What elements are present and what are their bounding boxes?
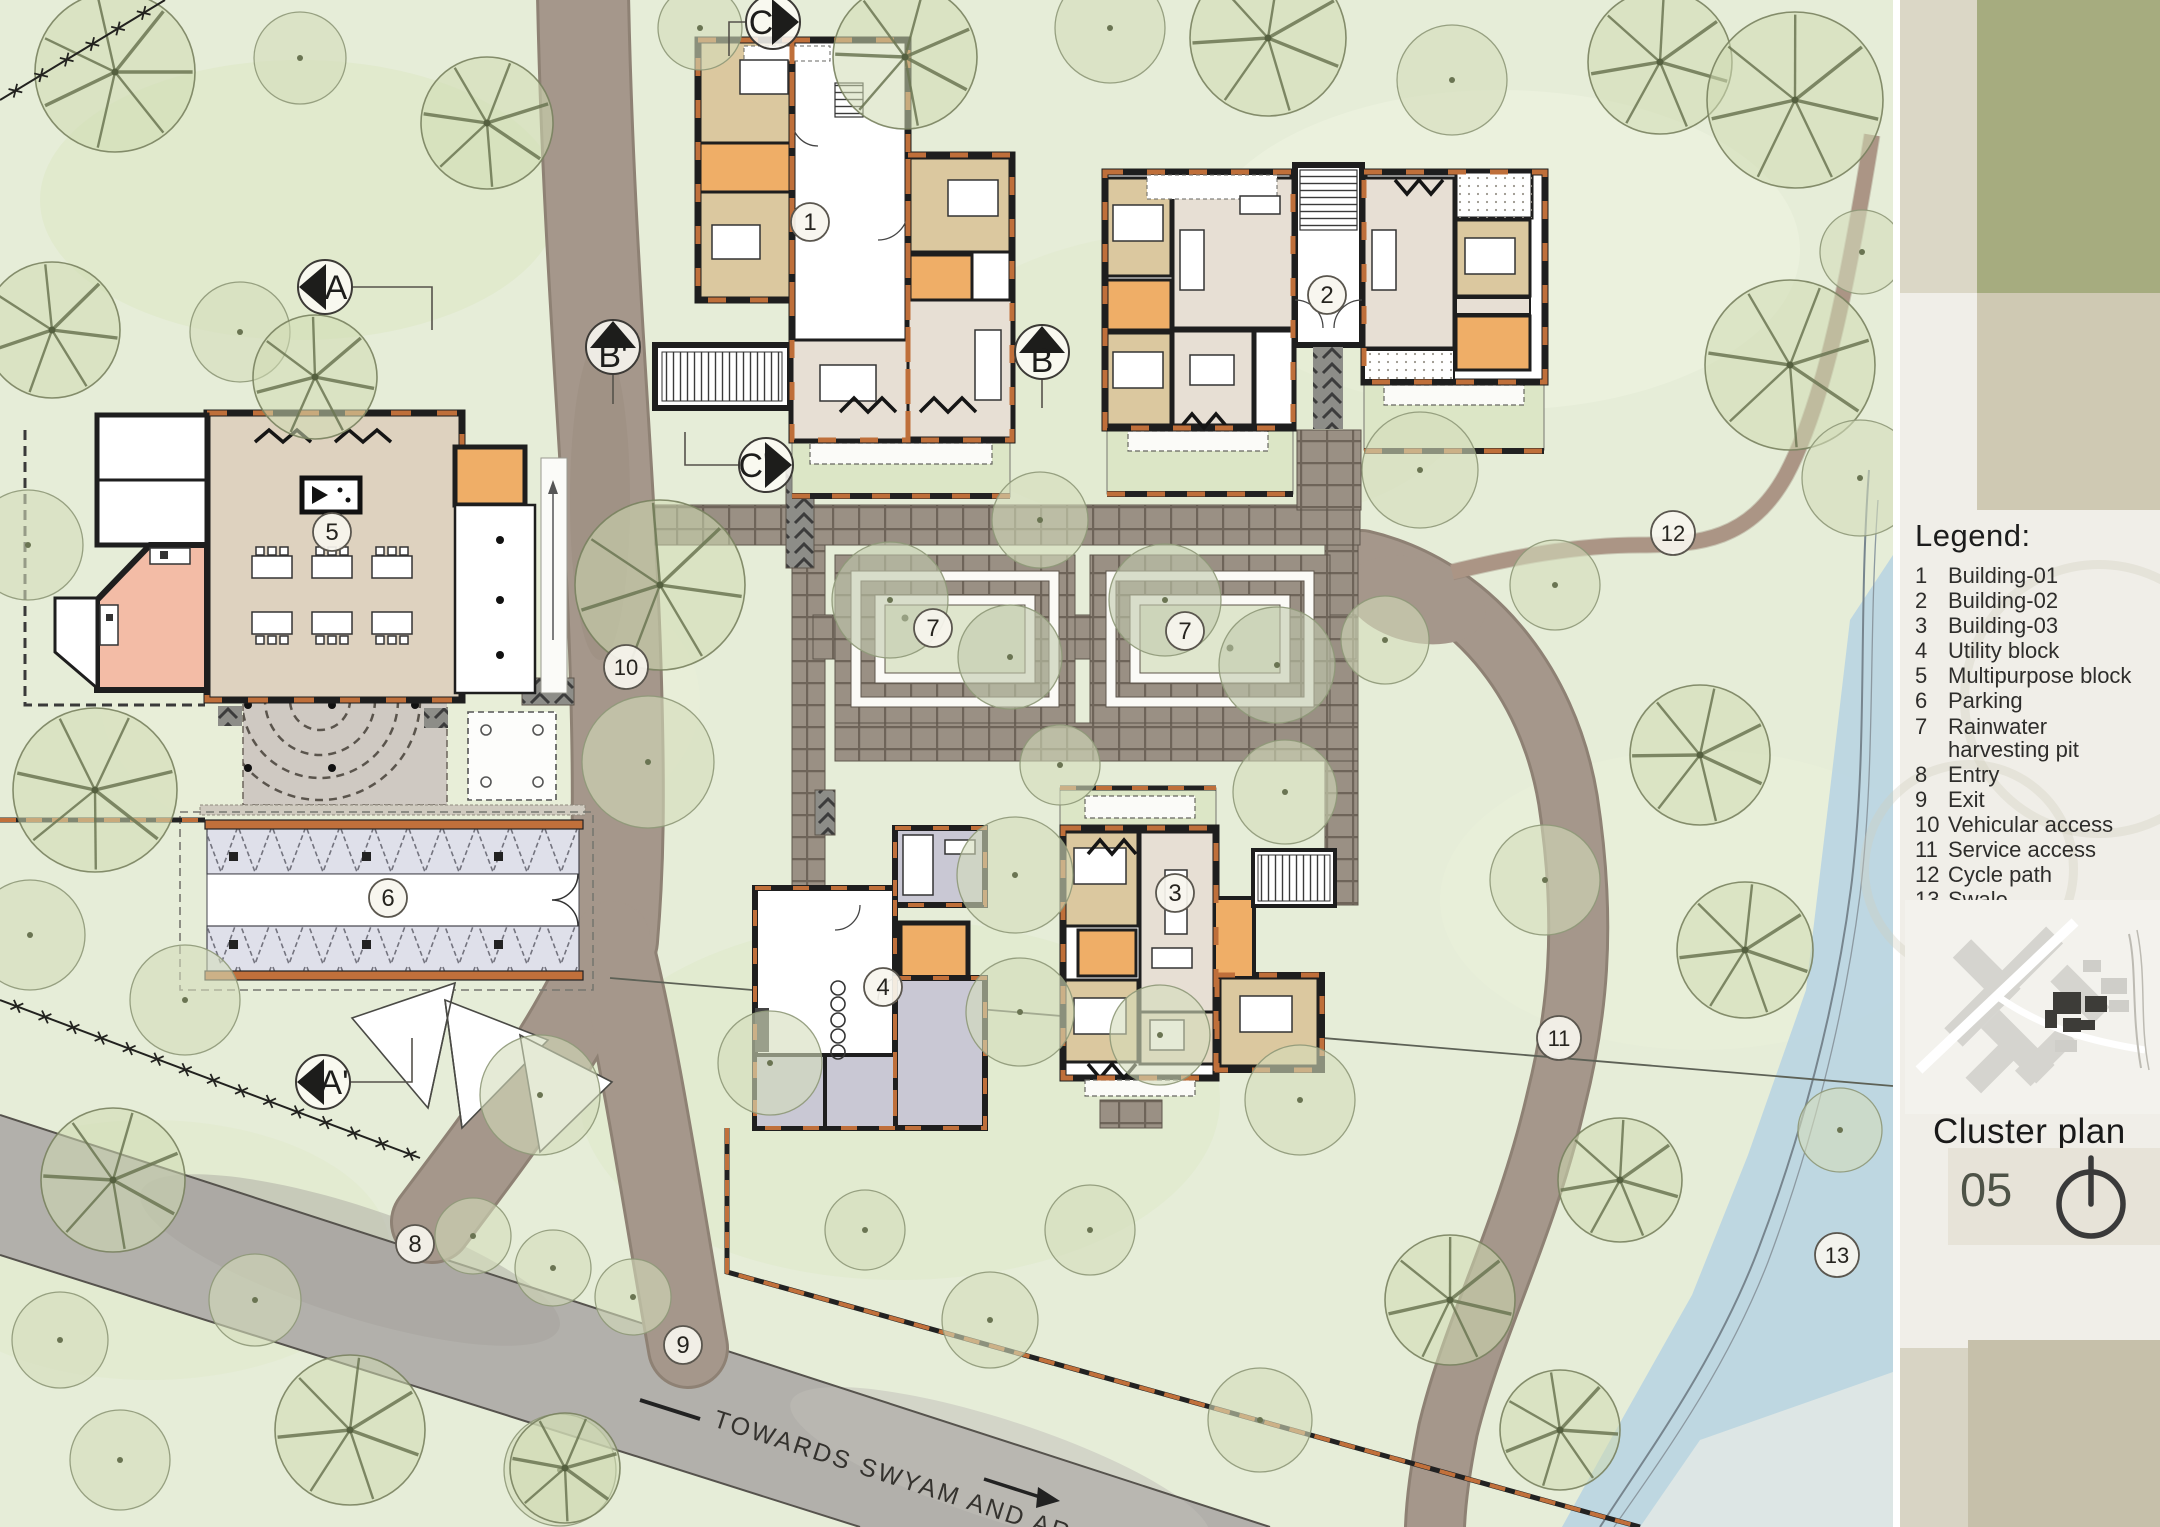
legend-item: 10Vehicular access bbox=[1915, 813, 2147, 836]
legend-item: 12Cycle path bbox=[1915, 863, 2147, 886]
tree bbox=[958, 605, 1062, 709]
legend-item: 1Building-01 bbox=[1915, 564, 2147, 587]
plan-marker-7: 7 bbox=[914, 609, 952, 647]
svg-text:8: 8 bbox=[408, 1231, 421, 1258]
plan-marker-10: 10 bbox=[604, 645, 648, 689]
sidebar-tan-block bbox=[1977, 293, 2160, 510]
svg-text:10: 10 bbox=[614, 655, 638, 680]
svg-text:C: C bbox=[749, 4, 774, 42]
tree bbox=[13, 708, 177, 872]
svg-text:7: 7 bbox=[1178, 618, 1191, 645]
tree bbox=[421, 57, 553, 189]
svg-text:4: 4 bbox=[876, 974, 889, 1001]
svg-text:B': B' bbox=[598, 337, 627, 375]
tree bbox=[35, 0, 195, 152]
legend-item: 8Entry bbox=[1915, 763, 2147, 786]
svg-text:2: 2 bbox=[1320, 282, 1333, 309]
tree bbox=[435, 1198, 511, 1274]
pavilion bbox=[468, 712, 556, 800]
tree bbox=[825, 1190, 905, 1270]
legend: Legend: 1Building-012Building-023Buildin… bbox=[1915, 518, 2147, 913]
sidebar-olive-block bbox=[1977, 0, 2160, 293]
tree bbox=[130, 945, 240, 1055]
tree bbox=[0, 880, 85, 990]
svg-text:3: 3 bbox=[1168, 880, 1181, 907]
tree bbox=[1500, 1370, 1620, 1490]
legend-item: 3Building-03 bbox=[1915, 614, 2147, 637]
sheet-number: 05 bbox=[1960, 1162, 2012, 1217]
legend-item: 4Utility block bbox=[1915, 639, 2147, 662]
svg-text:7: 7 bbox=[926, 615, 939, 642]
north-arrow-icon bbox=[2050, 1152, 2132, 1244]
tree bbox=[1045, 1185, 1135, 1275]
plan-marker-2: 2 bbox=[1308, 276, 1346, 314]
tree bbox=[966, 958, 1074, 1066]
plan-marker-6: 6 bbox=[369, 879, 407, 917]
svg-text:1: 1 bbox=[803, 209, 816, 236]
legend-item: 11Service access bbox=[1915, 838, 2147, 861]
legend-item: 7Rainwater harvesting pit bbox=[1915, 715, 2147, 761]
tree bbox=[582, 696, 714, 828]
svg-text:A: A bbox=[325, 269, 348, 307]
tree bbox=[942, 1272, 1038, 1368]
tree bbox=[1362, 412, 1478, 528]
tree bbox=[12, 1292, 108, 1388]
tree bbox=[1341, 596, 1429, 684]
tree bbox=[595, 1259, 671, 1335]
tree bbox=[41, 1108, 185, 1252]
svg-text:11: 11 bbox=[1548, 1026, 1571, 1051]
site-plan-drawing: TOWARDS SWYAM AND ARATI bbox=[0, 0, 2160, 1527]
tree bbox=[1110, 985, 1210, 1085]
sheet-title: Cluster plan bbox=[1933, 1112, 2126, 1152]
tree bbox=[575, 500, 745, 670]
tree bbox=[1630, 685, 1770, 825]
tree bbox=[253, 315, 377, 439]
tree bbox=[1385, 1235, 1515, 1365]
plan-marker-4: 4 bbox=[864, 968, 902, 1006]
tree bbox=[209, 1254, 301, 1346]
sidebar-bottom-tan bbox=[1968, 1340, 2160, 1527]
tree bbox=[1820, 210, 1904, 294]
tree bbox=[1190, 0, 1346, 116]
tree bbox=[1219, 607, 1335, 723]
svg-text:13: 13 bbox=[1825, 1243, 1849, 1268]
tree bbox=[718, 1011, 822, 1115]
plan-marker-12: 12 bbox=[1651, 511, 1695, 555]
tree bbox=[480, 1035, 600, 1155]
billiard-table-icon bbox=[302, 478, 360, 512]
tree bbox=[70, 1410, 170, 1510]
sidebar-color-strip bbox=[1900, 0, 1977, 293]
tree bbox=[510, 1413, 620, 1523]
sheet-number-block: 05 bbox=[1948, 1148, 2160, 1245]
key-map-inset bbox=[1905, 900, 2160, 1114]
plan-marker-1: 1 bbox=[791, 203, 829, 241]
svg-text:12: 12 bbox=[1661, 521, 1685, 546]
tree bbox=[1208, 1368, 1312, 1472]
tree bbox=[275, 1355, 425, 1505]
plan-marker-9: 9 bbox=[664, 1326, 702, 1364]
tree bbox=[957, 817, 1073, 933]
legend-item: 9Exit bbox=[1915, 788, 2147, 811]
sidebar-bottom-strip bbox=[1900, 1348, 1968, 1527]
tree bbox=[1109, 544, 1221, 656]
svg-text:C': C' bbox=[738, 447, 769, 485]
building-multipurpose-block bbox=[55, 413, 567, 700]
tree bbox=[1558, 1118, 1682, 1242]
plan-marker-11: 11 bbox=[1537, 1016, 1581, 1060]
legend-items: 1Building-012Building-023Building-034Uti… bbox=[1915, 564, 2147, 911]
plan-marker-8: 8 bbox=[396, 1225, 434, 1263]
svg-text:5: 5 bbox=[325, 519, 338, 546]
tree bbox=[992, 472, 1088, 568]
section-marker-C-prime: C' bbox=[685, 432, 793, 492]
legend-item: 2Building-02 bbox=[1915, 589, 2147, 612]
legend-item: 6Parking bbox=[1915, 689, 2147, 712]
tree bbox=[1020, 725, 1100, 805]
plan-marker-5: 5 bbox=[313, 513, 351, 551]
plan-marker-3: 3 bbox=[1156, 874, 1194, 912]
svg-text:B: B bbox=[1031, 342, 1054, 380]
tree bbox=[0, 490, 83, 600]
tree bbox=[1510, 540, 1600, 630]
tree bbox=[254, 12, 346, 104]
tree bbox=[515, 1230, 591, 1306]
tree bbox=[1490, 825, 1600, 935]
sheet-sidebar: Legend: 1Building-012Building-023Buildin… bbox=[1893, 0, 2160, 1527]
plan-marker-13: 13 bbox=[1815, 1233, 1859, 1277]
tree bbox=[1245, 1045, 1355, 1155]
svg-text:6: 6 bbox=[381, 885, 394, 912]
tree bbox=[1233, 740, 1337, 844]
tree bbox=[1397, 25, 1507, 135]
plan-marker-7: 7 bbox=[1166, 612, 1204, 650]
tree bbox=[1677, 882, 1813, 1018]
tree bbox=[1707, 12, 1883, 188]
legend-title: Legend: bbox=[1915, 518, 2147, 554]
svg-text:A': A' bbox=[319, 1064, 348, 1102]
svg-text:9: 9 bbox=[676, 1332, 689, 1359]
building-01 bbox=[655, 40, 1012, 497]
tree bbox=[1798, 1088, 1882, 1172]
legend-item: 5Multipurpose block bbox=[1915, 664, 2147, 687]
gravel-path bbox=[200, 805, 585, 815]
tree bbox=[1055, 0, 1165, 83]
cluster-plan-sheet: TOWARDS SWYAM AND ARATI bbox=[0, 0, 2160, 1527]
